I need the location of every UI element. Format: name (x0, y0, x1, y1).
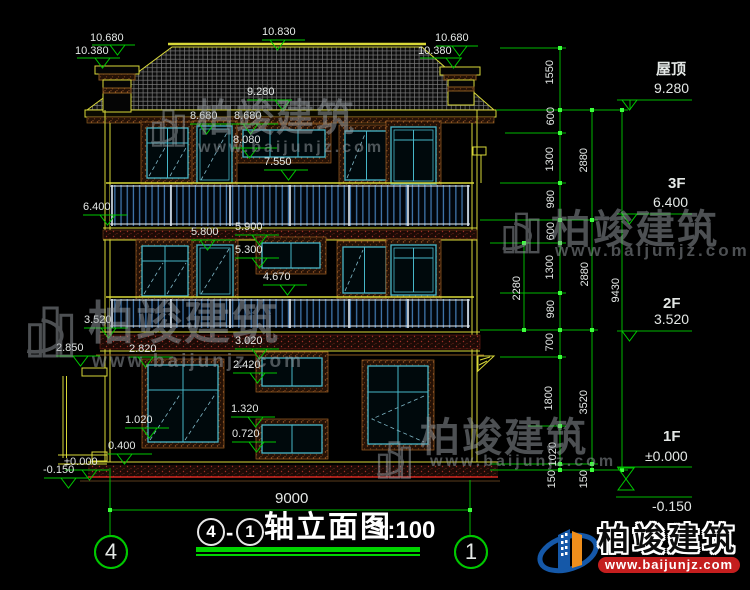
watermark-bottom: 柏竣建筑 www.baijunjz.com (372, 416, 622, 500)
elev-6400-left: 6.400 (83, 202, 111, 213)
elevation-drawing-canvas: 10.680 10.380 10.830 10.680 10.380 9.280… (0, 0, 750, 590)
floor-label-2f: 2F (663, 296, 681, 311)
watermark-logo-icon (20, 298, 80, 366)
elev-0720: 0.720 (232, 429, 260, 440)
dim-700: 700 (545, 333, 556, 351)
floor-elev-below: -0.150 (652, 499, 692, 513)
downspout (473, 147, 486, 183)
watermark-brand: 柏竣建筑 (196, 100, 356, 138)
elev-1320: 1.320 (231, 404, 259, 415)
brand-logo-text: 柏竣建筑 (598, 524, 738, 555)
watermark-logo-icon (372, 422, 416, 498)
elev-10830-ridge: 10.830 (262, 27, 296, 38)
elev-5800: 5.800 (191, 227, 219, 238)
watermark-logo-icon (146, 100, 190, 156)
title-underline-thin (196, 554, 420, 556)
watermark-brand: 柏竣建筑 (420, 418, 588, 458)
drawing-scale: 1:100 (374, 519, 435, 543)
title-dash: - (226, 522, 233, 544)
floor-label-1f: 1F (663, 429, 681, 444)
elev-10380-right: 10.380 (418, 46, 452, 57)
elev-4670: 4.670 (263, 272, 291, 283)
dim-600a: 600 (546, 107, 557, 125)
watermark-url: www.baijunjz.com (555, 242, 750, 259)
floor-elev-roof: 9.280 (654, 81, 689, 95)
dim-1550: 1550 (545, 60, 556, 84)
elev-10380-left: 10.380 (75, 46, 109, 57)
dim-3520: 3520 (579, 390, 590, 414)
dim-9430: 9430 (611, 278, 622, 302)
elev-1020: 1.020 (125, 415, 153, 426)
dim-2880b: 2880 (580, 262, 591, 286)
dim-1800: 1800 (544, 386, 555, 410)
brand-logo: 柏竣建筑 www.baijunjz.com (536, 516, 746, 582)
dim-9000: 9000 (275, 491, 308, 506)
grid-bubble-4: 4 (94, 535, 128, 569)
watermark-logo-icon (497, 206, 545, 260)
elev-10680-right: 10.680 (435, 33, 469, 44)
dim-2280: 2280 (512, 276, 523, 300)
dim-2880a: 2880 (579, 148, 590, 172)
corbel-right (478, 356, 494, 371)
watermark-top: 柏竣建筑 www.baijunjz.com (146, 96, 396, 162)
title-circle-1: 1 (236, 518, 264, 546)
watermark-url: www.baijunjz.com (430, 454, 616, 470)
drawing-title: 轴立面图 (264, 513, 392, 543)
title-circle-4: 4 (197, 518, 225, 546)
dim-980b: 980 (546, 300, 557, 318)
grid-bubble-1: 1 (454, 535, 488, 569)
title-underline-thick (196, 547, 420, 552)
brand-logo-icon (536, 518, 600, 580)
floor-label-roof: 屋顶 (656, 62, 686, 77)
floor3-railing (103, 183, 477, 240)
elev-5900: 5.900 (235, 222, 263, 233)
watermark-left: 柏竣建筑 www.baijunjz.com (20, 292, 350, 376)
floor-elev-1f: ±0.000 (645, 449, 688, 463)
porch-left (58, 368, 107, 464)
dim-1300a: 1300 (545, 147, 556, 171)
watermark-url: www.baijunjz.com (198, 140, 384, 156)
watermark-url: www.baijunjz.com (92, 352, 304, 371)
elev-neg150-left: -0.150 (43, 465, 74, 476)
watermark-right: 柏竣建筑 www.baijunjz.com (497, 204, 737, 264)
elev-0400: 0.400 (108, 441, 136, 452)
floor-elev-2f: 3.520 (654, 312, 689, 326)
elev-10680-left: 10.680 (90, 33, 124, 44)
floor-label-3f: 3F (668, 176, 686, 191)
elev-5300: 5.300 (235, 245, 263, 256)
watermark-brand: 柏竣建筑 (88, 300, 280, 346)
brand-logo-url: www.baijunjz.com (598, 557, 740, 573)
